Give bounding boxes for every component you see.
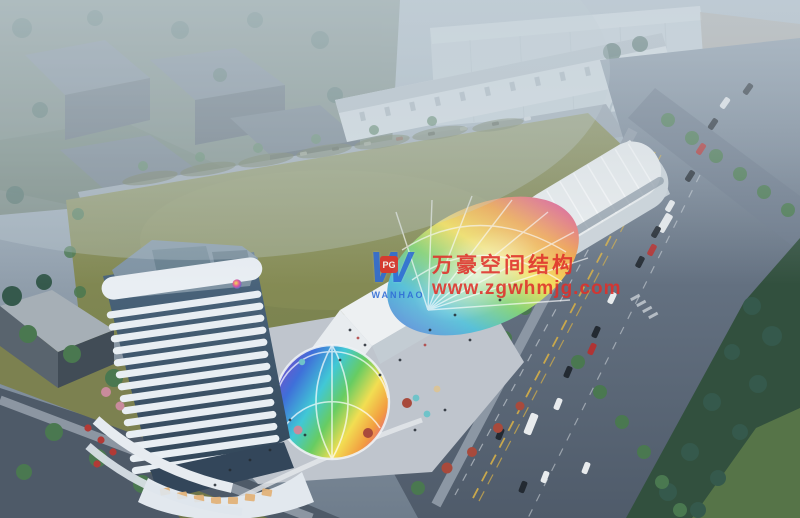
scene: 万达广场 xyxy=(0,0,800,518)
rendering-canvas: 万达广场 xyxy=(0,0,800,518)
